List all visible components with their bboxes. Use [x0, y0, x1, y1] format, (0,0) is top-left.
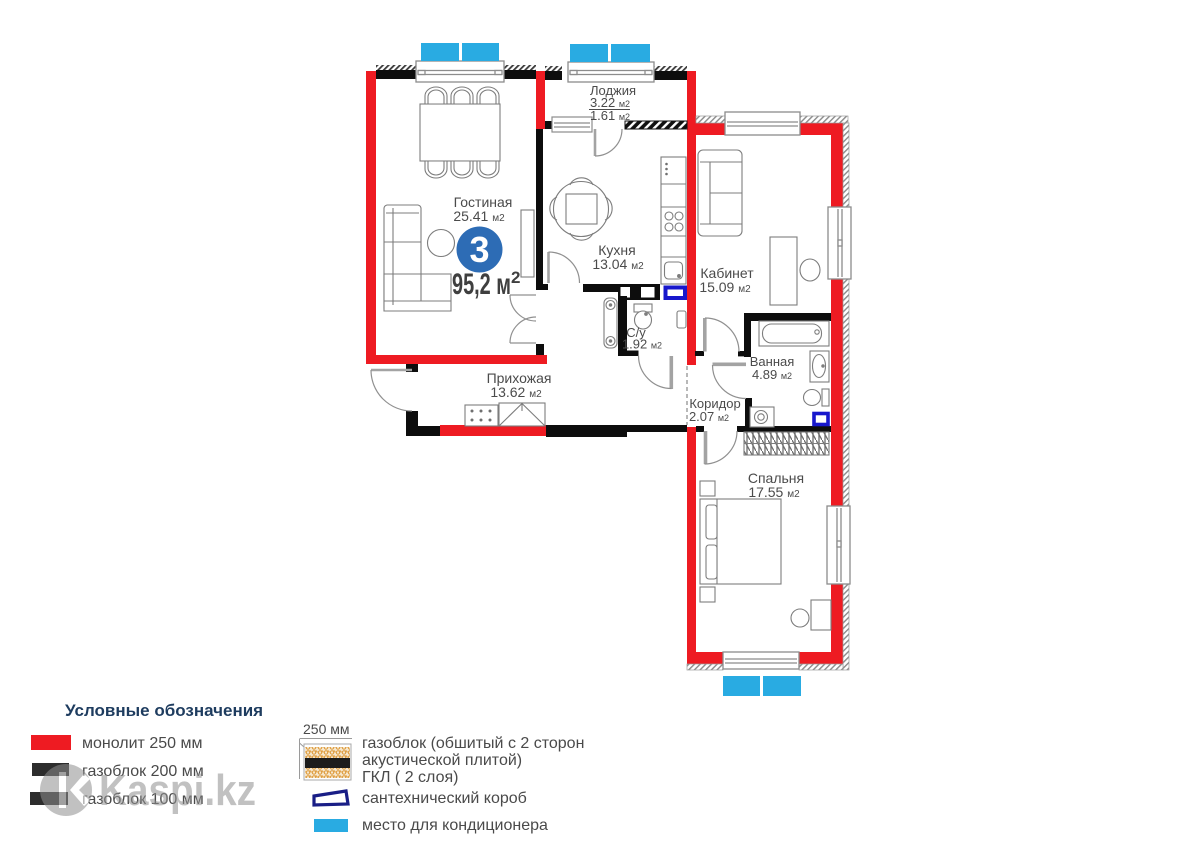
svg-text:13.62 м2: 13.62 м2: [490, 384, 542, 400]
svg-text:монолит 250 мм: монолит 250 мм: [82, 735, 202, 752]
svg-text:13.04 м2: 13.04 м2: [592, 256, 644, 272]
svg-text:3: 3: [469, 229, 489, 270]
svg-text:газоблок (обшитый с 2 сторон: газоблок (обшитый с 2 сторон: [362, 735, 584, 752]
svg-text:Kaspi.kz: Kaspi.kz: [99, 766, 256, 815]
svg-text:место для кондиционера: место для кондиционера: [362, 817, 548, 834]
svg-text:2.07 м2: 2.07 м2: [689, 409, 729, 424]
svg-text:1.61 м2: 1.61 м2: [590, 108, 630, 123]
svg-text:акустической плитой): акустической плитой): [362, 752, 522, 769]
svg-text:ГКЛ ( 2 слоя): ГКЛ ( 2 слоя): [362, 769, 458, 786]
svg-text:95,2 м: 95,2 м: [452, 268, 511, 301]
svg-text:17.55 м2: 17.55 м2: [748, 484, 800, 500]
svg-text:15.09 м2: 15.09 м2: [699, 279, 751, 295]
svg-text:2: 2: [511, 268, 520, 287]
svg-text:1.92 м2: 1.92 м2: [622, 337, 662, 352]
svg-text:25.41 м2: 25.41 м2: [453, 208, 505, 224]
svg-text:250 мм: 250 мм: [303, 721, 350, 737]
svg-text:Условные обозначения: Условные обозначения: [65, 701, 263, 720]
svg-text:сантехнический короб: сантехнический короб: [362, 790, 527, 807]
svg-text:4.89 м2: 4.89 м2: [752, 367, 792, 382]
